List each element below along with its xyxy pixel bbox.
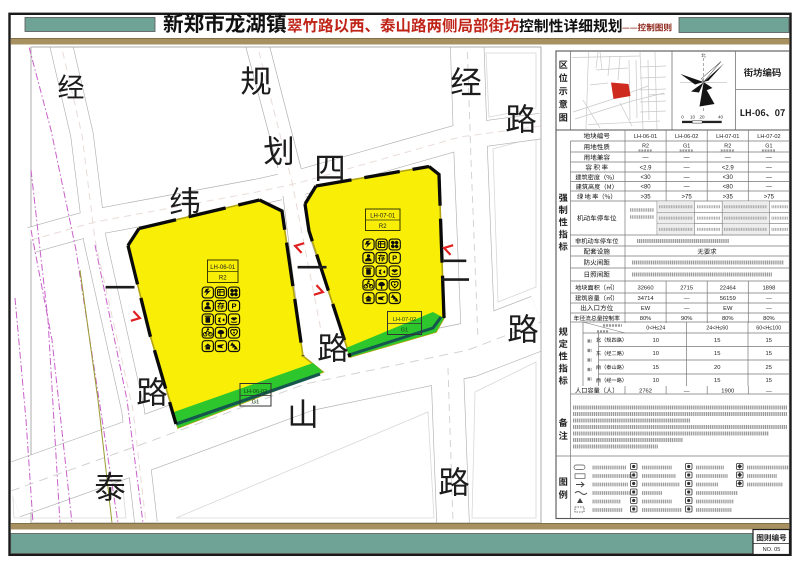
svg-text:80%: 80% bbox=[640, 316, 652, 322]
svg-text:R2: R2 bbox=[219, 276, 227, 282]
svg-text:1900: 1900 bbox=[721, 388, 734, 394]
svg-text:—: — bbox=[684, 185, 690, 191]
svg-text:>75: >75 bbox=[764, 195, 775, 201]
svg-text:LH-06-01: LH-06-01 bbox=[210, 265, 236, 271]
svg-text:—: — bbox=[766, 156, 772, 162]
svg-text:—: — bbox=[684, 175, 690, 181]
svg-text:56159: 56159 bbox=[720, 296, 736, 302]
svg-text:80%: 80% bbox=[722, 316, 734, 322]
svg-text:90%: 90% bbox=[681, 316, 693, 322]
svg-text:—: — bbox=[766, 296, 772, 302]
svg-text:<80: <80 bbox=[723, 185, 734, 191]
svg-text:80%: 80% bbox=[763, 316, 775, 322]
svg-text:NO. 05: NO. 05 bbox=[763, 547, 781, 553]
svg-text:15: 15 bbox=[653, 365, 659, 371]
svg-text:LH-07-01: LH-07-01 bbox=[370, 214, 396, 220]
svg-text:LH-07-02: LH-07-02 bbox=[757, 134, 780, 140]
svg-text:1898: 1898 bbox=[762, 286, 775, 292]
svg-text:—: — bbox=[725, 156, 731, 162]
svg-text:—: — bbox=[766, 185, 772, 191]
svg-text:10: 10 bbox=[690, 115, 696, 120]
svg-text:15: 15 bbox=[714, 338, 720, 344]
svg-text:R2: R2 bbox=[642, 144, 649, 150]
svg-text:15: 15 bbox=[714, 351, 720, 357]
svg-text:—: — bbox=[766, 306, 772, 312]
svg-text:G1: G1 bbox=[683, 144, 690, 150]
svg-text:—: — bbox=[643, 156, 649, 162]
svg-text:—: — bbox=[684, 388, 690, 394]
svg-text:LH-06-02: LH-06-02 bbox=[244, 389, 267, 395]
svg-text:10: 10 bbox=[653, 378, 659, 384]
svg-text:EW: EW bbox=[641, 306, 651, 312]
svg-text:60<H≤100: 60<H≤100 bbox=[756, 326, 781, 332]
svg-text:P: P bbox=[392, 254, 397, 263]
svg-text:22464: 22464 bbox=[720, 286, 737, 292]
svg-text:—: — bbox=[766, 388, 772, 394]
svg-text:>75: >75 bbox=[682, 195, 693, 201]
svg-text:G1: G1 bbox=[401, 328, 408, 334]
svg-text:15: 15 bbox=[766, 378, 772, 384]
svg-text:—: — bbox=[684, 166, 690, 172]
svg-text:40: 40 bbox=[718, 115, 724, 120]
svg-text:G1: G1 bbox=[252, 400, 259, 406]
svg-text:—: — bbox=[684, 296, 690, 302]
svg-text:—: — bbox=[766, 175, 772, 181]
svg-text:—: — bbox=[766, 166, 772, 172]
svg-text:>35: >35 bbox=[640, 195, 651, 201]
svg-text:<2.9: <2.9 bbox=[640, 166, 653, 172]
svg-text:<30: <30 bbox=[640, 175, 651, 181]
svg-text:15: 15 bbox=[766, 338, 772, 344]
svg-text:—: — bbox=[684, 156, 690, 162]
svg-text:LH-06-02: LH-06-02 bbox=[675, 134, 698, 140]
svg-text:EW: EW bbox=[723, 306, 733, 312]
svg-text:10: 10 bbox=[653, 351, 659, 357]
svg-text:G1: G1 bbox=[765, 144, 772, 150]
svg-text:25: 25 bbox=[766, 365, 772, 371]
svg-text:<80: <80 bbox=[640, 185, 651, 191]
svg-text:2762: 2762 bbox=[639, 388, 652, 394]
svg-text:<30: <30 bbox=[723, 175, 734, 181]
svg-text:—: — bbox=[684, 306, 690, 312]
svg-text:20: 20 bbox=[699, 115, 705, 120]
svg-text:P: P bbox=[231, 302, 236, 311]
svg-text:LH-06-01: LH-06-01 bbox=[634, 134, 657, 140]
svg-text:LH-07-02: LH-07-02 bbox=[393, 317, 416, 323]
svg-text:34714: 34714 bbox=[637, 296, 654, 302]
svg-text:10: 10 bbox=[653, 338, 659, 344]
svg-text:15: 15 bbox=[766, 351, 772, 357]
svg-text:15: 15 bbox=[714, 378, 720, 384]
svg-text:R2: R2 bbox=[724, 144, 731, 150]
svg-text:24<H≤60: 24<H≤60 bbox=[706, 326, 728, 332]
svg-text:R2: R2 bbox=[379, 224, 387, 230]
svg-text:<2.9: <2.9 bbox=[722, 166, 735, 172]
svg-text:>35: >35 bbox=[723, 195, 734, 201]
svg-text:32660: 32660 bbox=[637, 286, 653, 292]
svg-text:0<H≤24: 0<H≤24 bbox=[646, 326, 665, 332]
svg-text:LH-07-01: LH-07-01 bbox=[716, 134, 739, 140]
svg-text:2715: 2715 bbox=[680, 286, 693, 292]
svg-text:20: 20 bbox=[714, 365, 720, 371]
